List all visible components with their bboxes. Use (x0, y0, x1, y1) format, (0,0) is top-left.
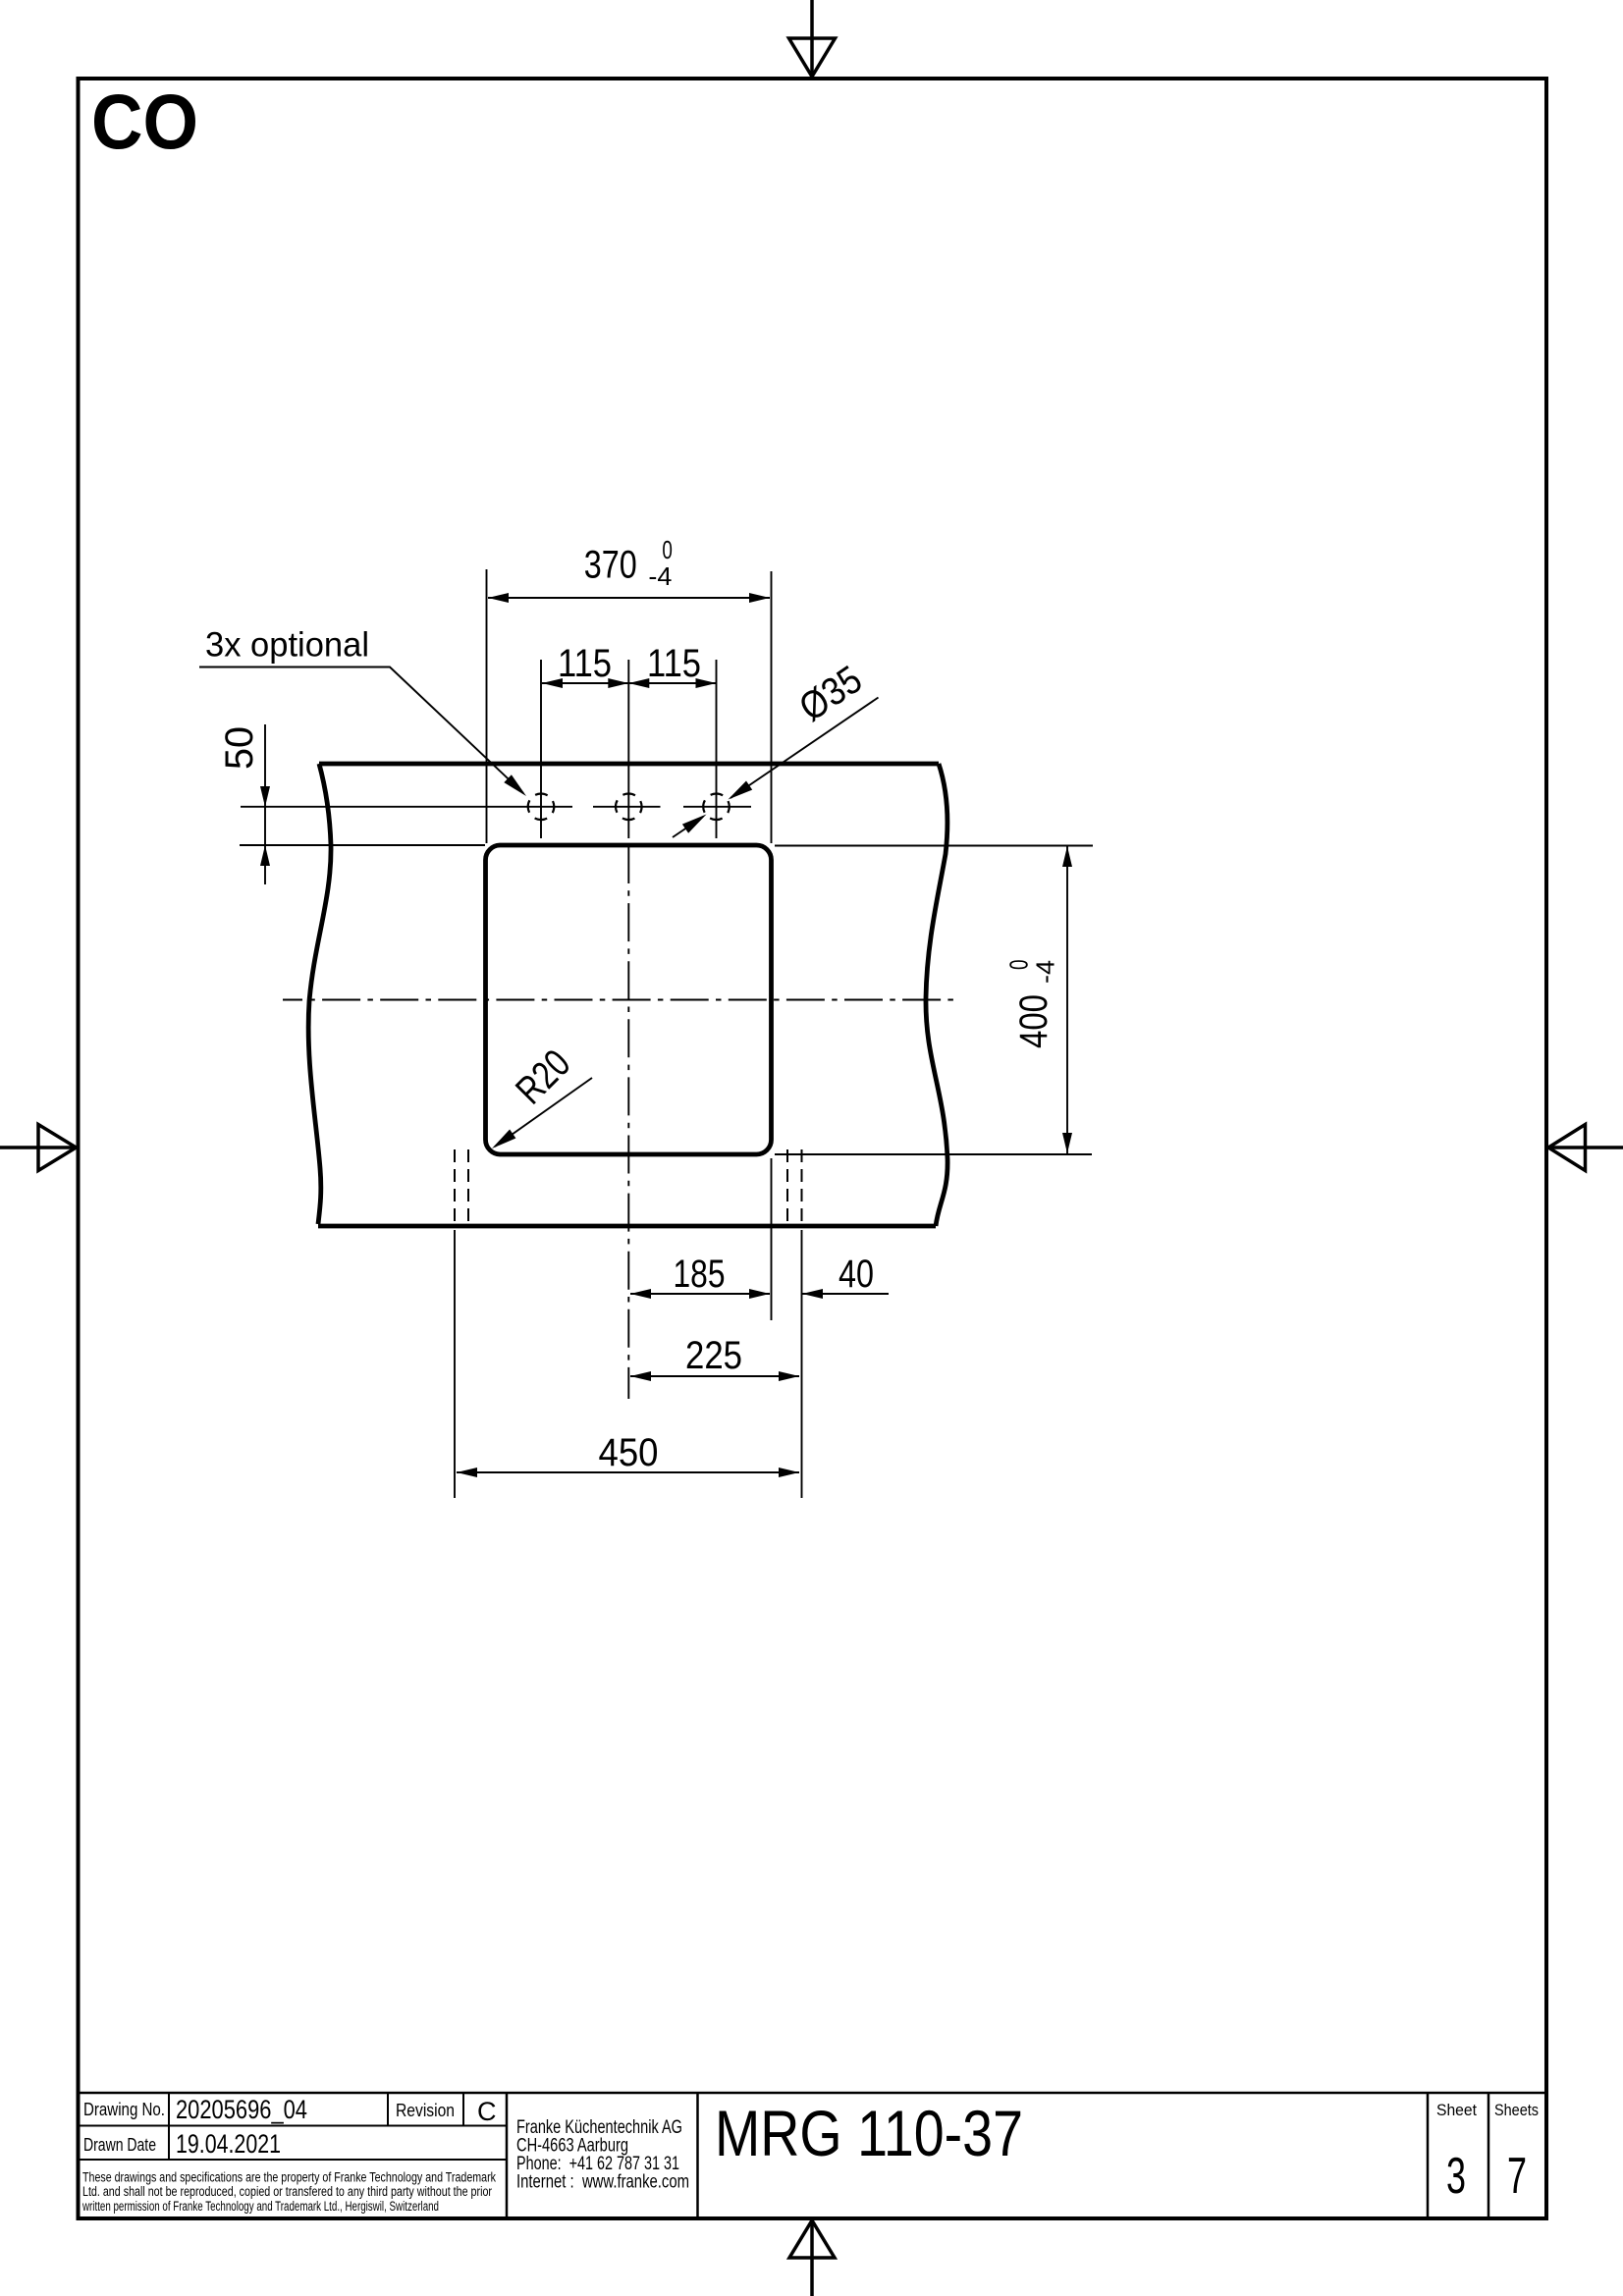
svg-text:MRG 110-37: MRG 110-37 (715, 2097, 1023, 2169)
svg-text:-4: -4 (648, 561, 672, 591)
svg-text:3: 3 (1446, 2148, 1466, 2205)
svg-text:115: 115 (647, 642, 701, 685)
svg-text:-4: -4 (1031, 960, 1060, 984)
svg-text:185: 185 (674, 1253, 726, 1296)
svg-text:50: 50 (218, 726, 261, 770)
svg-text:7: 7 (1507, 2148, 1527, 2205)
svg-text:400: 400 (1012, 994, 1055, 1048)
svg-text:These drawings and specificati: These drawings and specifications are th… (82, 2170, 496, 2185)
svg-text:20205696_04: 20205696_04 (176, 2095, 307, 2124)
svg-text:Sheet: Sheet (1436, 2101, 1477, 2119)
svg-text:0: 0 (662, 535, 673, 564)
svg-text:CO: CO (91, 78, 198, 165)
svg-text:Sheets: Sheets (1494, 2101, 1539, 2119)
svg-text:written permission of Franke T: written permission of Franke Technology … (81, 2199, 439, 2214)
svg-text:Drawn Date: Drawn Date (83, 2134, 156, 2155)
svg-text:Ltd. and shall not be reproduc: Ltd. and shall not be reproduced, copied… (82, 2184, 492, 2199)
svg-text:Internet : www.franke.com: Internet : www.franke.com (516, 2172, 689, 2193)
svg-text:450: 450 (599, 1431, 659, 1474)
svg-text:0: 0 (1004, 960, 1034, 971)
svg-text:19.04.2021: 19.04.2021 (176, 2129, 281, 2159)
svg-text:3x optional: 3x optional (205, 626, 369, 665)
svg-text:40: 40 (839, 1253, 874, 1296)
svg-text:C: C (477, 2097, 497, 2126)
svg-text:Drawing No.: Drawing No. (83, 2099, 165, 2119)
svg-text:370: 370 (584, 543, 637, 586)
svg-text:225: 225 (685, 1334, 742, 1377)
svg-text:Revision: Revision (396, 2100, 455, 2120)
svg-text:115: 115 (558, 642, 612, 685)
